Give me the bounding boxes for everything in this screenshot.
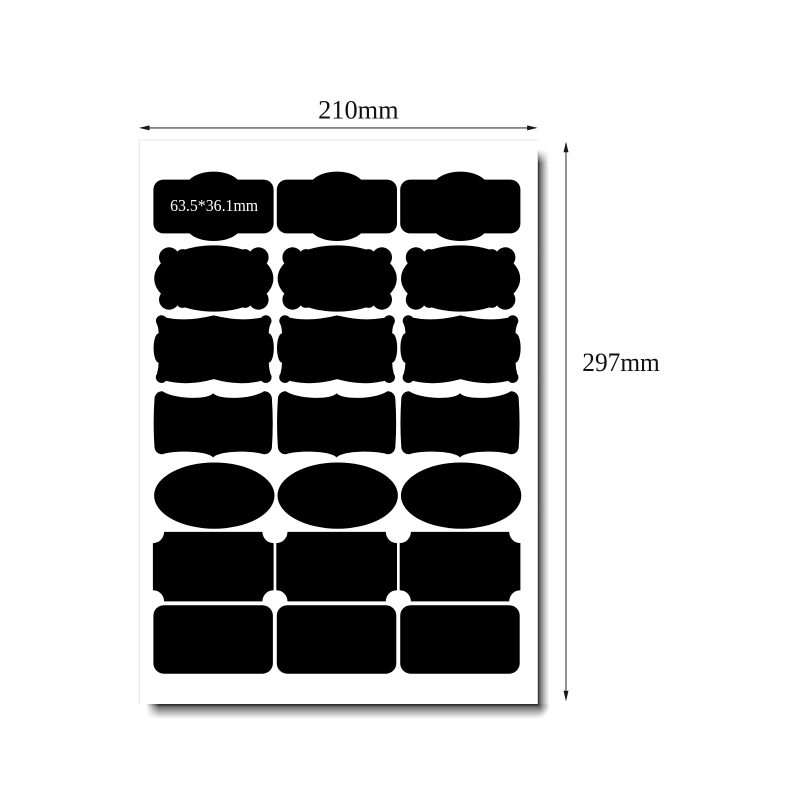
svg-text:210mm: 210mm xyxy=(318,96,399,125)
svg-text:63.5*36.1mm: 63.5*36.1mm xyxy=(170,196,259,215)
svg-text:297mm: 297mm xyxy=(582,348,660,377)
